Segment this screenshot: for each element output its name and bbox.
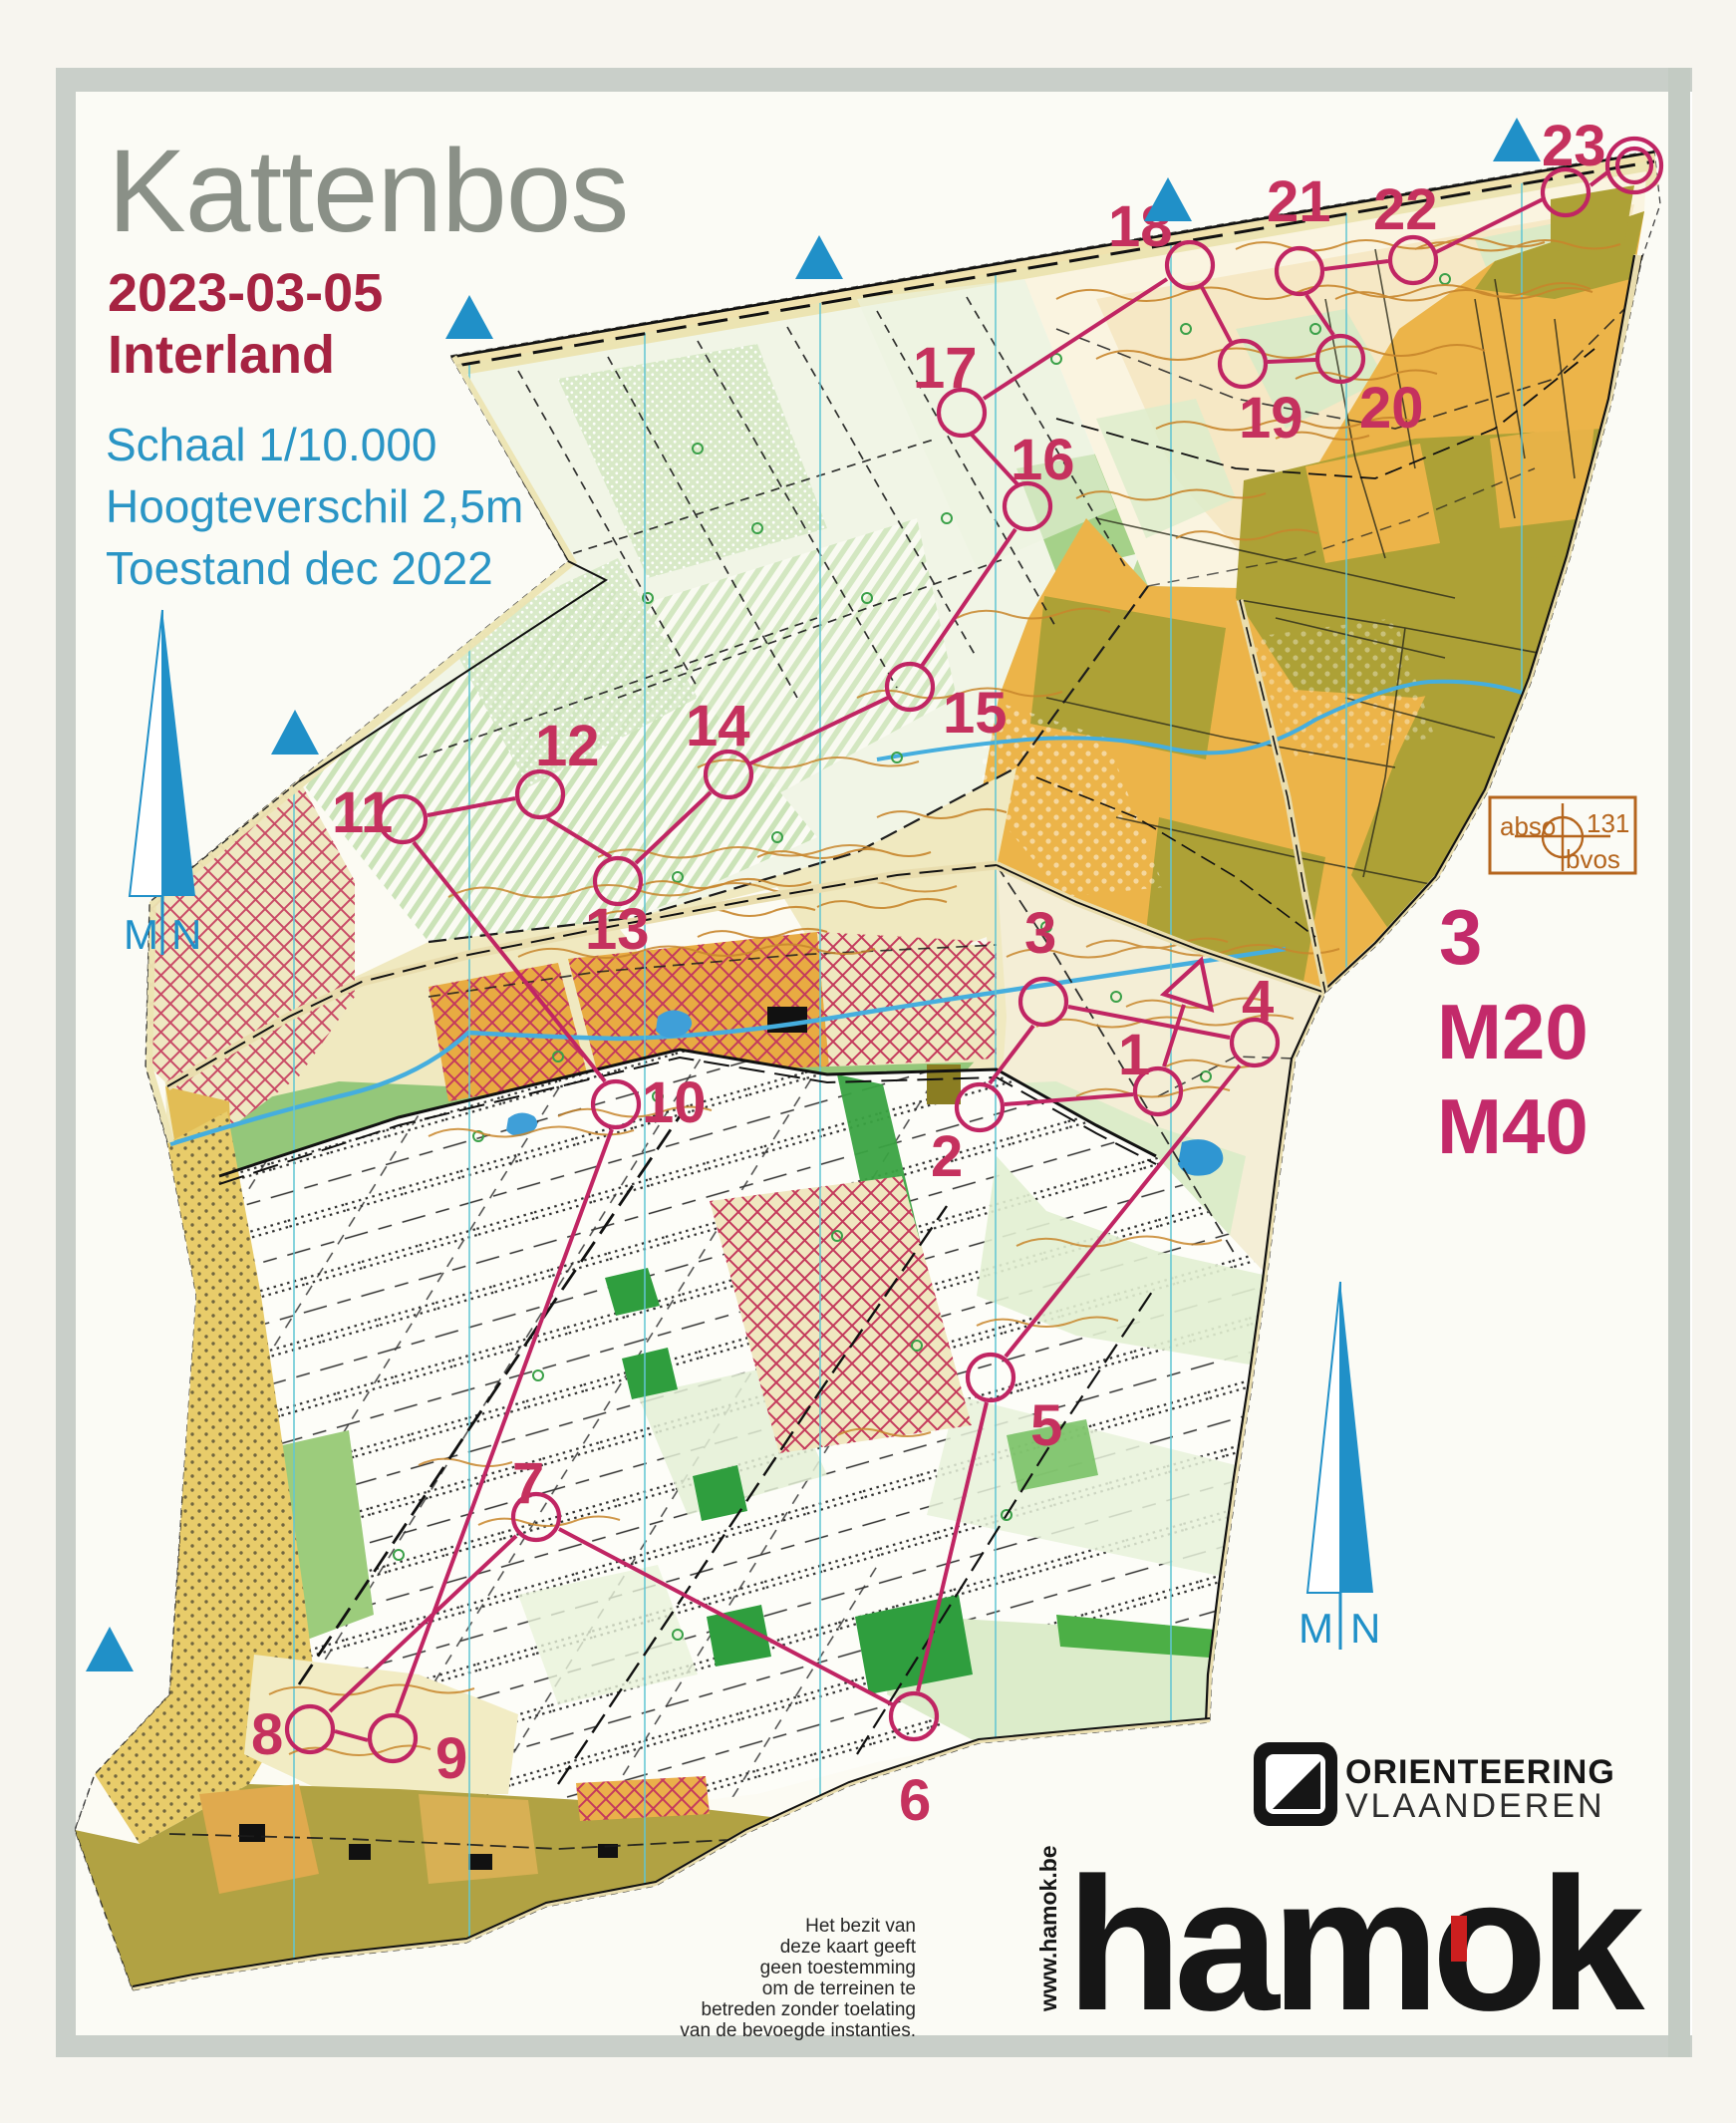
- svg-text:21: 21: [1267, 169, 1331, 234]
- svg-text:15: 15: [943, 681, 1008, 746]
- svg-text:M20: M20: [1437, 988, 1589, 1075]
- svg-text:Interland: Interland: [108, 325, 335, 385]
- svg-text:Kattenbos: Kattenbos: [108, 126, 628, 257]
- svg-text:van de bevoegde instanties.: van de bevoegde instanties.: [680, 2020, 916, 2041]
- svg-text:2023-03-05: 2023-03-05: [108, 263, 383, 323]
- svg-text:hamok: hamok: [1066, 1839, 1645, 2050]
- svg-text:23: 23: [1542, 114, 1606, 178]
- svg-text:19: 19: [1239, 386, 1303, 451]
- svg-text:14: 14: [686, 694, 750, 758]
- svg-text:12: 12: [535, 714, 600, 778]
- svg-text:VLAANDEREN: VLAANDEREN: [1345, 1787, 1605, 1825]
- svg-text:betreden zonder toelating: betreden zonder toelating: [702, 1999, 917, 2020]
- svg-text:Hoogteverschil 2,5m: Hoogteverschil 2,5m: [106, 480, 523, 532]
- svg-text:7: 7: [512, 1451, 544, 1516]
- svg-text:4: 4: [1242, 969, 1274, 1034]
- svg-text:13: 13: [585, 897, 650, 962]
- svg-text:10: 10: [642, 1070, 707, 1135]
- svg-text:om de terreinen te: om de terreinen te: [762, 1978, 916, 1999]
- svg-text:17: 17: [913, 336, 978, 401]
- svg-text:www.hamok.be: www.hamok.be: [1035, 1845, 1061, 2012]
- svg-text:M: M: [1299, 1605, 1333, 1652]
- svg-text:20: 20: [1359, 376, 1424, 441]
- svg-text:Schaal 1/10.000: Schaal 1/10.000: [106, 419, 437, 470]
- svg-text:5: 5: [1030, 1393, 1062, 1458]
- svg-text:bvos: bvos: [1566, 844, 1620, 874]
- svg-text:Het bezit van: Het bezit van: [805, 1916, 916, 1937]
- svg-text:2: 2: [931, 1124, 963, 1189]
- svg-text:8: 8: [251, 1702, 283, 1767]
- svg-text:N: N: [1350, 1605, 1380, 1652]
- svg-text:11: 11: [332, 780, 393, 845]
- svg-text:geen toestemming: geen toestemming: [760, 1958, 916, 1978]
- svg-text:ORIENTEERING: ORIENTEERING: [1345, 1753, 1615, 1791]
- svg-text:1: 1: [1118, 1023, 1150, 1087]
- svg-text:Toestand dec 2022: Toestand dec 2022: [106, 542, 493, 594]
- svg-text:deze kaart geeft: deze kaart geeft: [780, 1937, 917, 1958]
- svg-text:22: 22: [1373, 177, 1438, 242]
- svg-text:16: 16: [1011, 428, 1075, 492]
- svg-text:3: 3: [1024, 901, 1056, 966]
- svg-text:9: 9: [435, 1726, 467, 1791]
- svg-text:N: N: [171, 911, 201, 958]
- svg-text:3: 3: [1439, 893, 1482, 981]
- svg-text:6: 6: [899, 1768, 931, 1833]
- svg-text:131: 131: [1587, 808, 1629, 838]
- svg-text:M: M: [124, 911, 158, 958]
- svg-text:M40: M40: [1437, 1082, 1589, 1170]
